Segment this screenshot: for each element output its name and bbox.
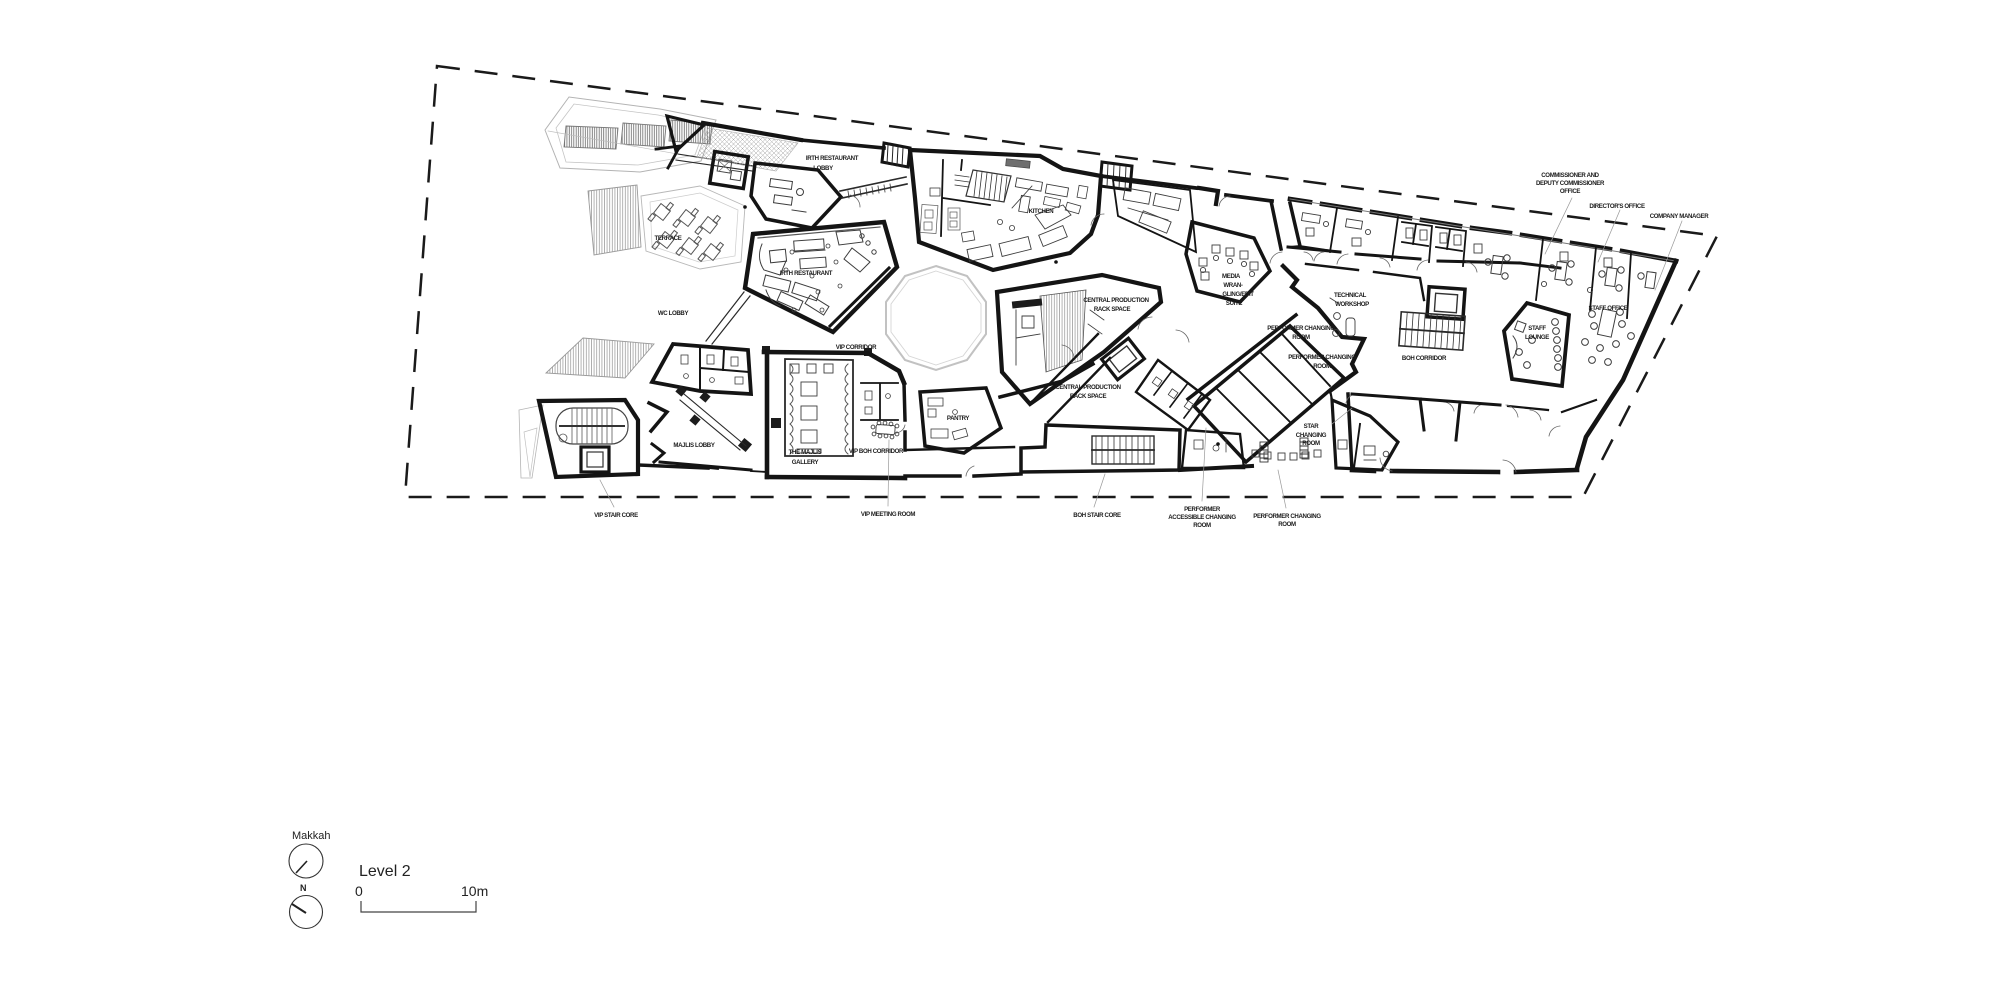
svg-text:WRAN-: WRAN- bbox=[1223, 282, 1243, 289]
svg-text:PERFORMER: PERFORMER bbox=[1184, 506, 1221, 513]
svg-text:DIRECTOR'S OFFICE: DIRECTOR'S OFFICE bbox=[1589, 203, 1645, 210]
svg-text:PERFORMER CHANGING: PERFORMER CHANGING bbox=[1253, 513, 1321, 520]
svg-text:ACCESSIBLE CHANGING: ACCESSIBLE CHANGING bbox=[1168, 514, 1236, 521]
svg-text:VIP MEETING ROOM: VIP MEETING ROOM bbox=[861, 511, 915, 518]
svg-text:STAR: STAR bbox=[1304, 423, 1320, 430]
svg-text:Level 2: Level 2 bbox=[359, 863, 411, 880]
svg-text:OFFICE: OFFICE bbox=[1560, 188, 1581, 195]
svg-text:MAJLIS LOBBY: MAJLIS LOBBY bbox=[673, 442, 714, 449]
svg-text:N: N bbox=[300, 883, 307, 893]
svg-text:RACK SPACE: RACK SPACE bbox=[1094, 306, 1131, 313]
svg-text:CENTRAL PRODUCTION: CENTRAL PRODUCTION bbox=[1083, 297, 1148, 304]
svg-text:ROOM: ROOM bbox=[1292, 334, 1310, 341]
svg-text:COMPANY MANAGER: COMPANY MANAGER bbox=[1650, 213, 1709, 220]
svg-text:TECHNICAL: TECHNICAL bbox=[1334, 292, 1367, 299]
svg-text:THE MAJLIS: THE MAJLIS bbox=[789, 449, 822, 456]
svg-text:IRTH RESTAURANT: IRTH RESTAURANT bbox=[806, 155, 859, 162]
svg-text:ROOM: ROOM bbox=[1302, 440, 1320, 447]
svg-text:TERRACE: TERRACE bbox=[654, 235, 681, 242]
svg-text:IRTH RESTAURANT: IRTH RESTAURANT bbox=[780, 270, 833, 277]
svg-text:ROOM: ROOM bbox=[1193, 522, 1211, 529]
svg-text:PERFORMER CHANGING: PERFORMER CHANGING bbox=[1267, 325, 1335, 332]
svg-text:STAFF OFFICE: STAFF OFFICE bbox=[1588, 305, 1627, 312]
svg-text:Makkah: Makkah bbox=[292, 830, 331, 842]
svg-text:LOUNGE: LOUNGE bbox=[1525, 334, 1549, 341]
svg-text:VIP STAIR CORE: VIP STAIR CORE bbox=[594, 512, 638, 519]
svg-text:RACK SPACE: RACK SPACE bbox=[1070, 393, 1107, 400]
svg-text:10m: 10m bbox=[461, 883, 488, 899]
svg-text:KITCHEN: KITCHEN bbox=[1029, 208, 1054, 215]
svg-text:PERFORMER CHANGING: PERFORMER CHANGING bbox=[1288, 354, 1356, 361]
svg-text:GLING/EDIT: GLING/EDIT bbox=[1222, 291, 1254, 298]
svg-text:COMMISSIONER AND: COMMISSIONER AND bbox=[1541, 172, 1599, 179]
svg-text:ROOM: ROOM bbox=[1278, 521, 1296, 528]
svg-text:DEPUTY COMMISSIONER: DEPUTY COMMISSIONER bbox=[1536, 180, 1605, 187]
svg-text:STAFF: STAFF bbox=[1528, 325, 1546, 332]
svg-text:VIP CORRIDOR: VIP CORRIDOR bbox=[836, 344, 877, 351]
svg-text:CHANGING: CHANGING bbox=[1296, 432, 1327, 439]
svg-text:WORKSHOP: WORKSHOP bbox=[1335, 301, 1369, 308]
svg-text:GALLERY: GALLERY bbox=[792, 459, 819, 466]
svg-text:MEDIA: MEDIA bbox=[1222, 273, 1241, 280]
svg-text:ROOM: ROOM bbox=[1313, 363, 1331, 370]
svg-text:WC LOBBY: WC LOBBY bbox=[658, 310, 689, 317]
svg-text:0: 0 bbox=[355, 883, 363, 899]
svg-text:SUITE: SUITE bbox=[1226, 300, 1242, 307]
svg-text:PANTRY: PANTRY bbox=[947, 415, 970, 422]
svg-text:CENTRAL PRODUCTION: CENTRAL PRODUCTION bbox=[1055, 384, 1120, 391]
svg-text:BOH CORRIDOR: BOH CORRIDOR bbox=[1402, 355, 1447, 362]
svg-text:LOBBY: LOBBY bbox=[813, 165, 833, 172]
svg-text:BOH STAIR CORE: BOH STAIR CORE bbox=[1073, 512, 1121, 519]
svg-text:VIP BOH CORRIDOR: VIP BOH CORRIDOR bbox=[849, 448, 904, 455]
